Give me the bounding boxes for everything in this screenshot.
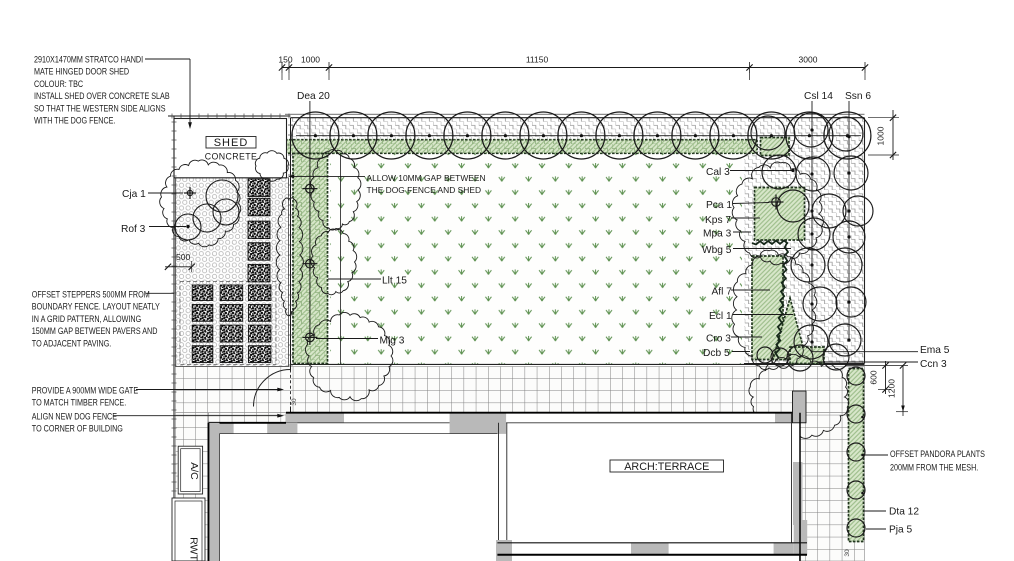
svg-text:Cro 3: Cro 3	[706, 334, 731, 345]
svg-text:3000: 3000	[799, 55, 818, 65]
svg-text:IN A GRID PATTERN, ALLOWING: IN A GRID PATTERN, ALLOWING	[32, 314, 141, 324]
svg-text:Ccn 3: Ccn 3	[920, 359, 947, 370]
svg-text:MATE HINGED DOOR SHED: MATE HINGED DOOR SHED	[34, 67, 129, 77]
svg-text:SHED: SHED	[214, 137, 249, 149]
svg-text:Cja 1: Cja 1	[122, 189, 146, 200]
svg-text:CONCRETE: CONCRETE	[205, 152, 258, 162]
svg-text:Pja 5: Pja 5	[889, 525, 913, 536]
svg-text:SO THAT THE WESTERN SIDE ALIGN: SO THAT THE WESTERN SIDE ALIGNS	[34, 104, 166, 114]
svg-text:COLOUR: TBC: COLOUR: TBC	[34, 79, 83, 89]
svg-text:Llt 15: Llt 15	[382, 276, 407, 287]
svg-text:OFFSET STEPPERS 500MM FROM: OFFSET STEPPERS 500MM FROM	[32, 290, 150, 300]
svg-text:Dta 12: Dta 12	[889, 507, 919, 518]
svg-text:Csl 14: Csl 14	[804, 91, 833, 102]
svg-text:Mpa 3: Mpa 3	[703, 229, 732, 240]
svg-text:Rof 3: Rof 3	[121, 224, 146, 235]
svg-text:TO ADJACENT PAVING.: TO ADJACENT PAVING.	[32, 339, 112, 349]
svg-text:Ema 5: Ema 5	[920, 345, 950, 356]
svg-text:Dea 20: Dea 20	[297, 91, 330, 102]
svg-text:11150: 11150	[526, 55, 549, 65]
svg-text:Kps 7: Kps 7	[705, 215, 731, 226]
svg-text:INSTALL SHED OVER CONCRETE SLA: INSTALL SHED OVER CONCRETE SLAB	[34, 91, 170, 101]
svg-text:THE DOG FENCE AND SHED: THE DOG FENCE AND SHED	[367, 185, 482, 195]
svg-text:200MM FROM THE MESH.: 200MM FROM THE MESH.	[890, 463, 978, 473]
svg-text:150: 150	[278, 55, 292, 65]
svg-text:PROVIDE A 900MM WIDE GATE: PROVIDE A 900MM WIDE GATE	[32, 386, 139, 396]
svg-text:OFFSET PANDORA PLANTS: OFFSET PANDORA PLANTS	[890, 449, 985, 459]
svg-text:Afl 7: Afl 7	[712, 287, 733, 298]
svg-text:1000: 1000	[876, 126, 886, 145]
svg-text:BOUNDARY FENCE. LAYOUT NEATLY: BOUNDARY FENCE. LAYOUT NEATLY	[32, 302, 161, 312]
svg-text:1200: 1200	[887, 379, 897, 398]
svg-text:30: 30	[844, 549, 851, 557]
svg-text:150MM GAP BETWEEN PAVERS AND: 150MM GAP BETWEEN PAVERS AND	[32, 326, 158, 336]
svg-text:Cal 3: Cal 3	[706, 167, 730, 178]
svg-text:Dcb 5: Dcb 5	[703, 348, 730, 359]
svg-text:30: 30	[291, 398, 298, 406]
svg-text:ALIGN NEW DOG FENCE: ALIGN NEW DOG FENCE	[32, 412, 118, 422]
svg-text:TO CORNER OF BUILDING: TO CORNER OF BUILDING	[32, 424, 123, 434]
svg-text:ARCH:TERRACE: ARCH:TERRACE	[624, 461, 709, 473]
svg-text:600: 600	[869, 370, 879, 384]
svg-text:1000: 1000	[301, 55, 320, 65]
svg-text:Wbg 5: Wbg 5	[702, 245, 732, 256]
svg-text:WITH THE DOG FENCE.: WITH THE DOG FENCE.	[34, 116, 115, 126]
svg-text:2910X1470MM STRATCO HANDI: 2910X1470MM STRATCO HANDI	[34, 55, 143, 65]
svg-text:ALLOW 10MM GAP BETWEEN: ALLOW 10MM GAP BETWEEN	[367, 173, 486, 183]
svg-text:Ssn 6: Ssn 6	[845, 91, 871, 102]
svg-text:RWT: RWT	[188, 537, 200, 561]
svg-text:Mlg 3: Mlg 3	[380, 336, 405, 347]
svg-text:500: 500	[176, 252, 190, 262]
svg-text:Ecl 1: Ecl 1	[709, 311, 732, 322]
svg-text:Pca 1: Pca 1	[706, 200, 732, 211]
svg-text:A/C: A/C	[188, 462, 200, 480]
svg-text:TO MATCH TIMBER FENCE.: TO MATCH TIMBER FENCE.	[32, 398, 126, 408]
